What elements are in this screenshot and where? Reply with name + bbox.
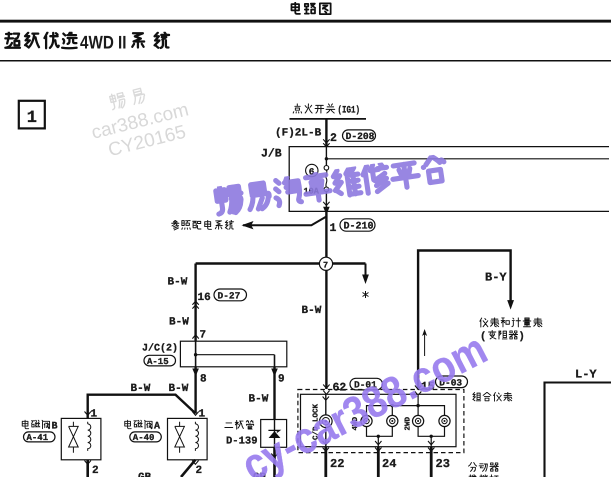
svg-text:9: 9 (278, 374, 285, 386)
svg-text:7: 7 (200, 330, 207, 342)
svg-text:4WD II: 4WD II (80, 32, 127, 53)
svg-text:(IG1): (IG1) (338, 105, 361, 116)
svg-text:22: 22 (330, 457, 344, 471)
svg-text:D-27: D-27 (218, 290, 241, 301)
svg-text:L-Y: L-Y (575, 368, 597, 382)
svg-text:J/C(2): J/C(2) (142, 343, 178, 355)
svg-text:(: ( (480, 331, 486, 343)
svg-text:B-W: B-W (131, 383, 151, 395)
svg-text:2: 2 (330, 132, 337, 145)
svg-text:A-41: A-41 (27, 433, 49, 443)
svg-text:B-W: B-W (249, 394, 269, 406)
svg-text:1: 1 (27, 109, 37, 128)
svg-text:2WD: 2WD (404, 416, 413, 430)
svg-text:2: 2 (196, 465, 203, 477)
svg-text:D-210: D-210 (344, 222, 374, 233)
svg-text:8: 8 (200, 374, 207, 386)
svg-text:B-W: B-W (169, 383, 189, 395)
svg-text:A-40: A-40 (133, 433, 155, 443)
svg-text:J/B: J/B (261, 148, 282, 161)
svg-text:23: 23 (436, 457, 450, 471)
svg-text:1: 1 (330, 222, 337, 235)
svg-text:B-W: B-W (302, 305, 322, 317)
svg-text:B: B (52, 422, 58, 433)
svg-text:B-W: B-W (169, 317, 189, 329)
svg-text:(F)2L-B: (F)2L-B (275, 128, 322, 140)
svg-text:D-208: D-208 (346, 131, 375, 142)
svg-text:GB: GB (138, 472, 152, 477)
svg-text:): ) (519, 331, 525, 343)
svg-text:16: 16 (198, 292, 211, 304)
svg-text:24: 24 (382, 457, 396, 471)
svg-text:A: A (154, 422, 160, 433)
svg-text:B-Y: B-Y (485, 271, 507, 285)
svg-text:7: 7 (323, 261, 328, 271)
svg-text:B-W: B-W (168, 277, 188, 289)
svg-text:2: 2 (92, 465, 99, 477)
svg-text:A-15: A-15 (147, 357, 169, 367)
